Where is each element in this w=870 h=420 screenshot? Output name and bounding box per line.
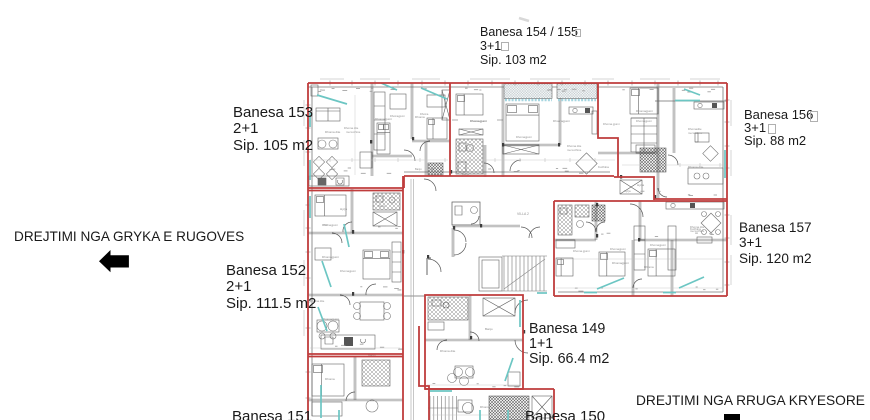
svg-text:Dhoma dite: Dhoma dite <box>325 130 341 134</box>
svg-text:Dhomagjumi: Dhomagjumi <box>516 135 532 139</box>
svg-text:Dhoma gjumi: Dhoma gjumi <box>573 249 590 253</box>
svg-text:Dhomagjumi: Dhomagjumi <box>612 261 629 265</box>
svg-text:Dhomagjumi: Dhomagjumi <box>610 247 626 251</box>
svg-text:Dhoma: Dhoma <box>415 115 425 119</box>
svg-text:Dhoma gjumi: Dhoma gjumi <box>603 122 620 126</box>
svg-text:Dhoma dite: Dhoma dite <box>688 165 704 169</box>
svg-text:Banjo: Banjo <box>415 167 422 171</box>
svg-text:VILLA 2: VILLA 2 <box>517 212 529 216</box>
svg-text:Dhomagjumi: Dhomagjumi <box>340 269 356 273</box>
svg-text:Dhomagjumi: Dhomagjumi <box>650 243 666 247</box>
svg-text:Dhomagjumi: Dhomagjumi <box>553 119 570 123</box>
svg-text:me kuzhine: me kuzhine <box>688 131 703 135</box>
svg-text:Dhomagjumi: Dhomagjumi <box>322 317 339 321</box>
svg-text:Hyrja: Hyrja <box>340 207 347 211</box>
svg-text:Dhoma: Dhoma <box>325 377 335 381</box>
svg-text:me kuzhine: me kuzhine <box>567 148 582 152</box>
svg-text:Dhomagjumi: Dhomagjumi <box>636 109 653 113</box>
svg-text:Banjo: Banjo <box>485 327 493 331</box>
svg-text:Dhomagjumi: Dhomagjumi <box>390 114 405 118</box>
svg-text:Dhoma: Dhoma <box>644 265 654 269</box>
svg-text:Banjo: Banjo <box>378 204 386 208</box>
svg-text:Kuzhina: Kuzhina <box>690 227 701 231</box>
svg-text:Dhomagjumi: Dhomagjumi <box>636 119 652 123</box>
svg-text:Dhomagjumi: Dhomagjumi <box>322 255 339 259</box>
svg-text:Dhoma: Dhoma <box>480 405 490 409</box>
svg-text:Dhomagjumi: Dhomagjumi <box>375 117 392 121</box>
svg-text:me kuzhine: me kuzhine <box>346 130 361 134</box>
svg-text:Hyrja: Hyrja <box>637 183 644 187</box>
svg-text:Dhomagjumi: Dhomagjumi <box>470 119 487 123</box>
svg-text:Hyrja: Hyrja <box>624 189 631 193</box>
svg-text:Dhoma dite: Dhoma dite <box>440 349 456 353</box>
svg-text:Kuzhina: Kuzhina <box>598 165 609 169</box>
